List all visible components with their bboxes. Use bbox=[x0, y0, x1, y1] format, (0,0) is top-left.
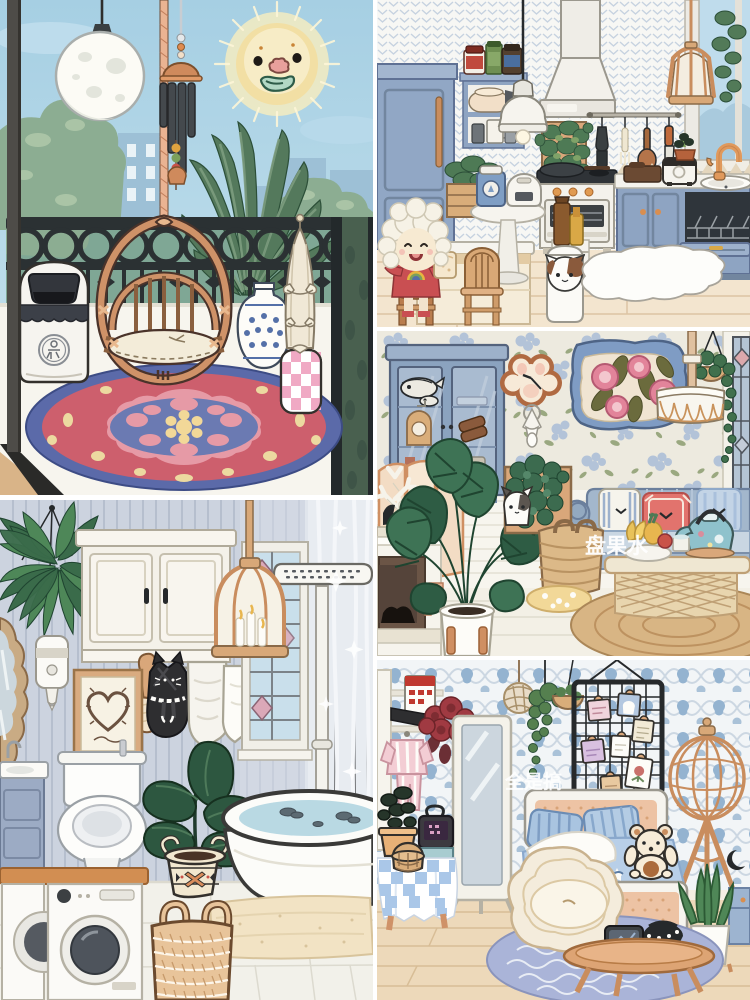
svg-text:全是搞: 全是搞 bbox=[504, 770, 562, 793]
svg-text:盘果水: 盘果水 bbox=[585, 534, 649, 558]
